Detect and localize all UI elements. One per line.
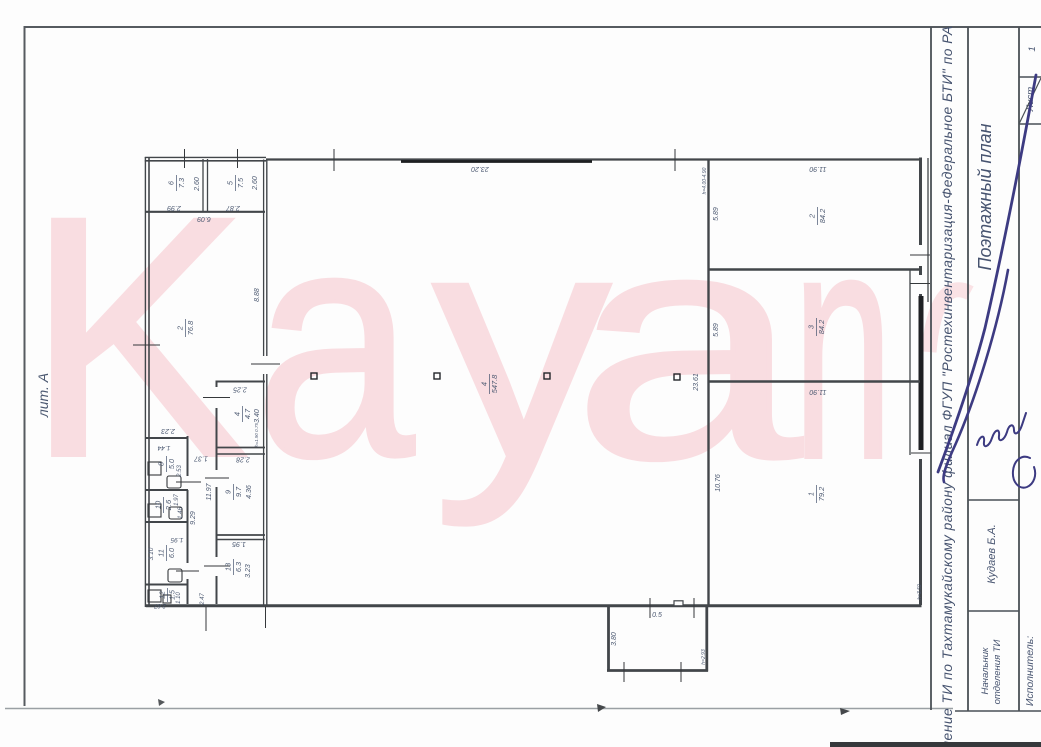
svg-text:1: 1: [1027, 46, 1038, 51]
svg-text:9: 9: [224, 490, 233, 494]
svg-text:2.60: 2.60: [252, 176, 259, 191]
svg-text:23.20: 23.20: [471, 165, 490, 172]
svg-text:2.6: 2.6: [164, 499, 173, 511]
svg-text:2.60: 2.60: [194, 177, 201, 192]
svg-text:3.23: 3.23: [245, 564, 252, 578]
svg-text:3.80: 3.80: [611, 632, 618, 646]
svg-text:84.2: 84.2: [818, 209, 827, 223]
svg-text:4.7: 4.7: [243, 408, 252, 419]
svg-text:84.2: 84.2: [817, 320, 826, 334]
svg-text:Поэтажный план: Поэтажный план: [975, 123, 995, 270]
svg-text:a: a: [255, 161, 416, 525]
svg-text:h=2.93: h=2.93: [701, 649, 707, 665]
svg-text:2.53: 2.53: [177, 465, 183, 478]
svg-text:2.47: 2.47: [200, 593, 206, 606]
svg-text:5.89: 5.89: [713, 323, 720, 337]
svg-text:6.0: 6.0: [167, 547, 176, 558]
svg-text:лит. А: лит. А: [35, 373, 51, 418]
svg-text:Начальник: Начальник: [980, 647, 991, 694]
svg-text:Кудаев Б.А.: Кудаев Б.А.: [986, 524, 998, 584]
svg-text:1.95: 1.95: [170, 536, 183, 543]
svg-text:13: 13: [224, 562, 233, 571]
svg-text:h=4.00-4.90: h=4.00-4.90: [702, 167, 708, 194]
svg-text:h=3.50: h=3.50: [917, 584, 923, 600]
svg-text:4: 4: [480, 382, 489, 386]
svg-text:1.97: 1.97: [174, 494, 180, 506]
svg-text:11.90: 11.90: [809, 388, 826, 395]
svg-text:5.0: 5.0: [167, 458, 176, 469]
svg-text:деление ТИ по Тахтамукайскому: деление ТИ по Тахтамукайскому району фил…: [940, 25, 955, 747]
svg-text:h=1.90 0.75: h=1.90 0.75: [254, 423, 259, 447]
svg-text:3.10: 3.10: [148, 547, 155, 560]
svg-text:7.5: 7.5: [236, 177, 245, 188]
svg-text:2.25: 2.25: [233, 386, 248, 393]
svg-text:0.5: 0.5: [652, 612, 662, 619]
svg-text:10.76: 10.76: [715, 474, 722, 492]
svg-text:2: 2: [808, 214, 817, 219]
svg-text:2.23: 2.23: [161, 427, 176, 434]
svg-text:1.44: 1.44: [157, 444, 170, 451]
svg-text:4.36: 4.36: [246, 485, 253, 499]
svg-text:5.89: 5.89: [713, 207, 720, 221]
svg-text:2.67: 2.67: [154, 602, 167, 608]
svg-text:11.90: 11.90: [809, 165, 826, 172]
svg-text:11: 11: [157, 549, 166, 557]
svg-text:Исполнитель:: Исполнитель:: [1024, 636, 1036, 706]
svg-text:6.3: 6.3: [234, 561, 243, 572]
svg-text:2.28: 2.28: [236, 456, 251, 463]
svg-text:2.87: 2.87: [225, 204, 241, 211]
svg-text:10: 10: [154, 500, 163, 509]
svg-text:отделения ТИ: отделения ТИ: [992, 639, 1003, 704]
svg-text:12: 12: [160, 591, 167, 599]
svg-text:a: a: [572, 162, 804, 526]
svg-text:4: 4: [233, 412, 242, 416]
svg-text:9.29: 9.29: [190, 511, 197, 525]
svg-text:1.95: 1.95: [232, 540, 246, 547]
svg-text:23.61: 23.61: [693, 373, 700, 392]
svg-text:1.46: 1.46: [178, 507, 184, 519]
svg-text:2.99: 2.99: [167, 204, 182, 211]
svg-text:8.88: 8.88: [254, 288, 261, 302]
svg-text:1.37: 1.37: [193, 455, 208, 462]
svg-text:2: 2: [176, 326, 185, 331]
svg-text:76.8: 76.8: [186, 320, 195, 335]
svg-text:11.97: 11.97: [206, 482, 213, 500]
svg-text:547.8: 547.8: [490, 374, 499, 393]
svg-text:79.2: 79.2: [817, 487, 826, 501]
svg-text:1.10: 1.10: [176, 592, 182, 604]
svg-text:1: 1: [807, 492, 816, 496]
svg-text:3.40: 3.40: [254, 409, 261, 423]
svg-text:6.09: 6.09: [197, 215, 211, 222]
svg-text:9.7: 9.7: [234, 486, 243, 497]
svg-text:7.3: 7.3: [177, 177, 186, 188]
svg-text:K: K: [26, 145, 248, 528]
